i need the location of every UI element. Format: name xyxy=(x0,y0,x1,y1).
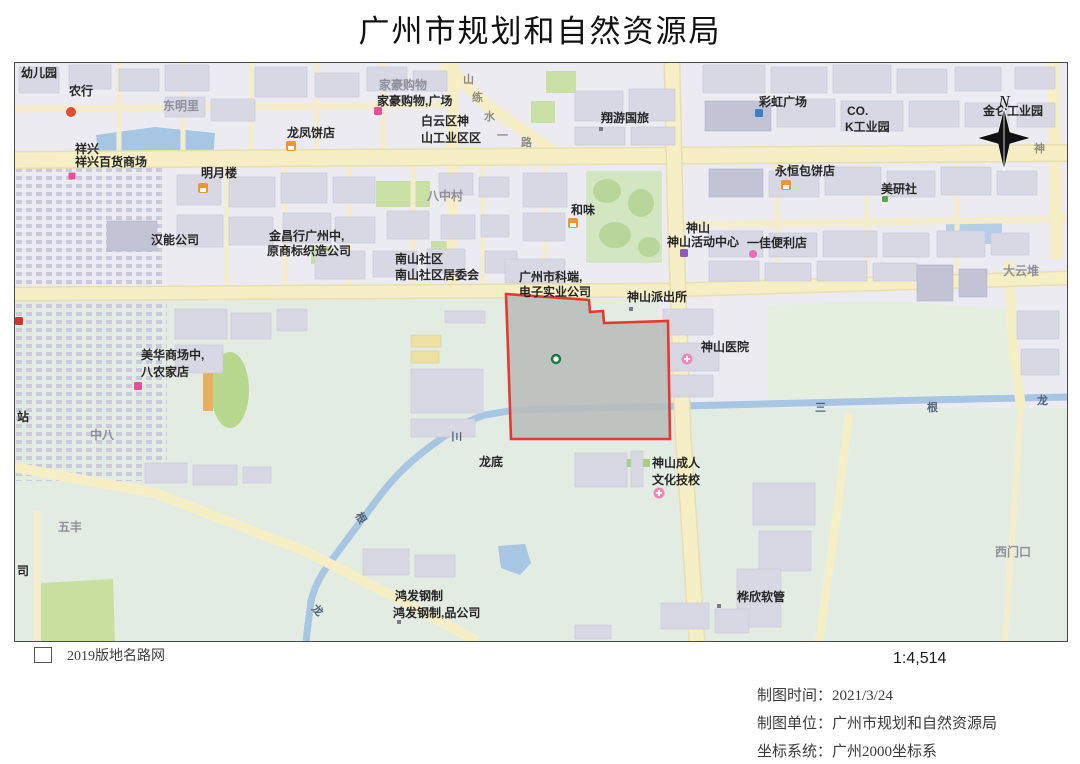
restaurant-icon-hewei xyxy=(568,218,578,228)
map-label: 神山医院 xyxy=(701,339,749,354)
main-road-north xyxy=(15,153,1067,160)
mall-icon-meihua xyxy=(134,382,142,390)
map-label: 龙 xyxy=(1036,393,1048,407)
open-field xyxy=(768,301,1014,403)
map-label: 金仑工业园 xyxy=(982,103,1043,118)
map-label: 一佳便利店 xyxy=(747,235,807,250)
scale-text: 1:4,514 xyxy=(893,650,946,668)
poi-dot-xiangyou xyxy=(599,127,603,131)
map-label: 幼儿园 xyxy=(21,65,57,80)
activity-center-icon-shenshan xyxy=(680,249,688,257)
bakery-icon-yongheng xyxy=(781,180,791,190)
map-label: 美华商场中, xyxy=(141,347,204,362)
map-label: 金昌行广州中, xyxy=(268,228,344,243)
legend-swatch xyxy=(34,647,52,663)
map-label: 永恒包饼店 xyxy=(774,163,835,178)
map-label: 八农家店 xyxy=(140,364,189,379)
map-label: 西门口 xyxy=(995,544,1031,559)
map-label: 五丰 xyxy=(58,519,82,534)
map-label: 八中村 xyxy=(426,188,463,203)
map-canvas: 幼儿园农行东明里祥兴祥兴百货商场明月楼汉能公司金昌行广州中,原商标织造公司家豪购… xyxy=(14,62,1068,642)
map-label: 大云堆 xyxy=(1003,263,1039,278)
legend-label: 2019版地名路网 xyxy=(67,645,165,665)
edge-poi-icon xyxy=(15,317,23,325)
map-label: 彩虹广场 xyxy=(758,94,807,109)
map-metadata: 制图时间：2021/3/24 制图单位：广州市规划和自然资源局 坐标系统：广州2… xyxy=(757,682,997,764)
map-label: 神 xyxy=(1034,141,1045,155)
hospital-icon-shenshan xyxy=(682,354,693,365)
map-label: 美研社 xyxy=(881,181,917,196)
map-label: 神山派出所 xyxy=(627,289,687,304)
poi-dot-huaxin xyxy=(717,604,721,608)
map-label: 广州市科端, xyxy=(519,269,582,284)
map-label: 中八 xyxy=(90,427,115,442)
map-label: 山 xyxy=(463,72,474,86)
store-icon-yijia xyxy=(749,250,757,258)
field-bottom-left xyxy=(41,579,115,641)
map-label: 南山社区居委会 xyxy=(395,267,480,282)
legend: 2019版地名路网 xyxy=(34,645,165,665)
map-label: 三 xyxy=(815,401,826,414)
map-label: 祥兴 xyxy=(75,141,99,156)
map-label: 原商标织造公司 xyxy=(267,243,351,258)
map-label: 三 xyxy=(450,431,463,442)
map-label: 山工业区区 xyxy=(421,130,481,145)
shop-icon-jiahao xyxy=(374,107,382,115)
map-label: 东明里 xyxy=(163,98,199,113)
meta-date: 制图时间：2021/3/24 xyxy=(757,682,997,710)
poi-dot-hongfa xyxy=(397,620,401,624)
parcel-center-marker xyxy=(552,355,560,363)
meta-coordinate-system: 坐标系统：广州2000坐标系 xyxy=(757,738,997,764)
map-label: 水 xyxy=(484,109,496,123)
poi-dot-paichusuo xyxy=(629,307,633,311)
map-label: 练 xyxy=(472,90,483,104)
map-label: 龙凤饼店 xyxy=(287,125,335,140)
bakery-icon-longfeng xyxy=(286,141,296,151)
map-label: 明月楼 xyxy=(201,165,237,180)
bank-icon xyxy=(66,107,76,117)
page-title: 广州市规划和自然资源局 xyxy=(0,6,1080,51)
school-icon-wenhua xyxy=(654,488,665,499)
map-label: 家豪购物 xyxy=(379,77,427,92)
map-label: 翔游国旅 xyxy=(600,110,649,125)
map-label: 鸿发钢制,品公司 xyxy=(393,605,480,620)
map-label: 祥兴百货商场 xyxy=(75,154,147,169)
map-label: 家豪购物,广场 xyxy=(377,93,452,108)
map-label: 路 xyxy=(521,135,533,149)
map-label: 鸿发钢制 xyxy=(395,588,443,603)
map-label: 汉能公司 xyxy=(151,232,199,247)
map-label: 神山 xyxy=(686,220,710,235)
restaurant-icon-mingyuelou xyxy=(198,183,208,193)
map-label: 农行 xyxy=(68,83,93,98)
map-label: 龙底 xyxy=(479,454,503,469)
plaza-icon-caihong xyxy=(755,109,763,117)
map-label: 文化技校 xyxy=(652,472,701,487)
map-svg: 幼儿园农行东明里祥兴祥兴百货商场明月楼汉能公司金昌行广州中,原商标织造公司家豪购… xyxy=(15,63,1067,641)
map-label: 电子实业公司 xyxy=(519,284,591,299)
village-blocks-2 xyxy=(15,303,167,481)
store-icon-xiangxing xyxy=(69,173,76,180)
map-label: 白云区神 xyxy=(421,113,469,128)
map-label: 神山成人 xyxy=(652,455,701,470)
meta-agency: 制图单位：广州市规划和自然资源局 xyxy=(757,710,997,738)
map-label: 司 xyxy=(17,564,29,578)
map-label: 桦欣软管 xyxy=(737,589,785,604)
map-label: 根 xyxy=(927,400,939,414)
map-label: CO. xyxy=(847,104,868,118)
map-label: 神山活动中心 xyxy=(667,234,739,249)
map-label: 南山社区 xyxy=(395,251,443,266)
map-label: 一 xyxy=(497,130,508,142)
map-document-page: 广州市规划和自然资源局 xyxy=(0,0,1080,764)
studio-icon-meiyanshe xyxy=(882,196,888,202)
map-label: 和味 xyxy=(570,202,595,217)
map-label: 站 xyxy=(17,409,29,424)
map-label: K工业园 xyxy=(845,119,890,134)
